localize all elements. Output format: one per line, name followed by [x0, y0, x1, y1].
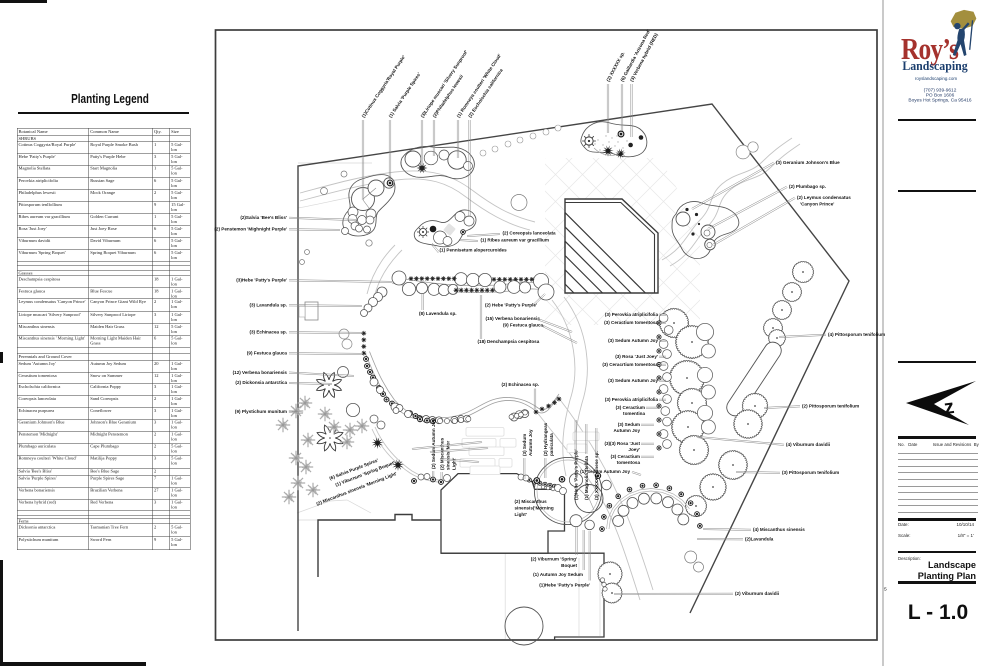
svg-text:(15) Verbena bonariensis: (15) Verbena bonariensis — [486, 316, 541, 321]
svg-text:(2) Coreopsis lanceolata: (2) Coreopsis lanceolata — [503, 231, 557, 236]
svg-text:(9) Festuca glauca: (9) Festuca glauca — [247, 351, 288, 356]
svg-text:tomentina: tomentina — [623, 411, 645, 416]
svg-text:z: z — [943, 396, 956, 419]
svg-text:(3) Ceractium tomentosa: (3) Ceractium tomentosa — [604, 320, 658, 325]
svg-text:sinensis('Morning: sinensis('Morning — [515, 506, 554, 511]
svg-text:(4) Viburnum davidii: (4) Viburnum davidii — [786, 442, 830, 447]
svg-text:(2) Echinacea sp.: (2) Echinacea sp. — [502, 382, 540, 387]
svg-text:(3) Sedum Autumn Joy: (3) Sedum Autumn Joy — [608, 378, 658, 383]
svg-text:(4) Pittosporum tenifolium: (4) Pittosporum tenifolium — [828, 332, 885, 337]
svg-text:(3) Ceractium: (3) Ceractium — [611, 454, 640, 459]
svg-text:(3) Perovkia atriplicifolia: (3) Perovkia atriplicifolia — [605, 397, 659, 402]
svg-text:paniculata: paniculata — [549, 433, 554, 456]
svg-text:Joey': Joey' — [628, 447, 640, 452]
svg-text:(1)Hebe 'Patty's Purple': (1)Hebe 'Patty's Purple' — [574, 449, 579, 500]
svg-text:(1) Romneya coulteri 'White Cl: (1) Romneya coulteri 'White Cloud' — [456, 53, 502, 119]
svg-text:(3) Sedum: (3) Sedum — [618, 422, 640, 427]
svg-text:Autumn Joy: Autumn Joy — [528, 429, 533, 456]
svg-text:(3) Lavandula sp.: (3) Lavandula sp. — [249, 303, 287, 308]
svg-text:(2) Hydrangeas: (2) Hydrangeas — [543, 422, 548, 456]
svg-text:(3)(3) Rosa 'Just: (3)(3) Rosa 'Just — [604, 441, 640, 446]
svg-text:tomentosa: tomentosa — [617, 460, 641, 465]
svg-text:Light': Light' — [515, 512, 527, 517]
svg-text:(3) Sedum Autumn Joy: (3) Sedum Autumn Joy — [608, 338, 658, 343]
svg-text:(3) Sedum: (3) Sedum — [522, 434, 527, 456]
svg-text:(3) Echinacea sp.: (3) Echinacea sp. — [249, 330, 287, 335]
svg-text:(12) Verbena bonariensis: (12) Verbena bonariensis — [233, 370, 288, 375]
svg-text:Autumn Joy: Autumn Joy — [613, 428, 640, 433]
svg-text:Boquet: Boquet — [561, 563, 577, 568]
svg-text:(3) Ceractium: (3) Ceractium — [616, 405, 645, 410]
svg-text:(8) Lavendula sp.: (8) Lavendula sp. — [419, 311, 457, 316]
svg-text:(1) Autumn Joy Sedum: (1) Autumn Joy Sedum — [533, 572, 583, 577]
svg-text:(1) Pennisetum alopercuroides: (1) Pennisetum alopercuroides — [440, 248, 508, 253]
svg-text:(3) Geranium Johnson's Blue: (3) Geranium Johnson's Blue — [776, 160, 840, 165]
svg-text:(1) Salvia 'Purple Spires': (1) Salvia 'Purple Spires' — [388, 72, 422, 119]
svg-text:(3) Perovkia atriplicifolia: (3) Perovkia atriplicifolia — [605, 312, 659, 317]
svg-text:(3) Rosa 'Just Joey': (3) Rosa 'Just Joey' — [615, 354, 658, 359]
svg-text:(2) Plumbago sp.: (2) Plumbago sp. — [789, 184, 826, 189]
svg-text:(3)Hebe 'Patty's Purple': (3)Hebe 'Patty's Purple' — [236, 278, 287, 283]
svg-text:(2) Miscanthus: (2) Miscanthus — [515, 499, 548, 504]
svg-text:(18) Denchampsia cespitosa: (18) Denchampsia cespitosa — [478, 339, 540, 344]
svg-text:(2) Penstemon 'Mighnight Purpl: (2) Penstemon 'Mighnight Purple' — [214, 227, 287, 232]
svg-text:(3) Ceracrtium tomentosa: (3) Ceracrtium tomentosa — [602, 362, 658, 367]
svg-text:(1)Hebe 'Patty's Purple': (1)Hebe 'Patty's Purple' — [539, 583, 590, 588]
svg-text:(3) Pittosporum tenifolium: (3) Pittosporum tenifolium — [782, 470, 839, 475]
svg-text:(2)Salvia 'Bee's Bliss': (2)Salvia 'Bee's Bliss' — [240, 215, 287, 220]
svg-text:'Canyon Prince': 'Canyon Prince' — [800, 202, 834, 207]
svg-text:(2) Hebe 'Patty's Purple': (2) Hebe 'Patty's Purple' — [485, 303, 537, 308]
svg-text:(2) Sedum Autumn Joy: (2) Sedum Autumn Joy — [431, 419, 436, 469]
svg-text:(2) Viburnum davidii: (2) Viburnum davidii — [735, 591, 779, 596]
svg-text:(1) Magnolia stellata: (1) Magnolia stellata — [584, 456, 589, 500]
svg-text:(1) Ribes aureum var gracilliu: (1) Ribes aureum var gracillium — [481, 238, 549, 243]
svg-text:(3) XXXXXX sinese sp.: (3) XXXXXX sinese sp. — [594, 451, 599, 500]
svg-text:(2) Miscanthus: (2) Miscanthus — [440, 437, 445, 470]
svg-text:(2) Leymus condensatus: (2) Leymus condensatus — [797, 195, 851, 200]
svg-text:(4) Miscanthus sinensis: (4) Miscanthus sinensis — [753, 527, 805, 532]
svg-text:(2) Dickonsia antarctica: (2) Dickonsia antarctica — [235, 380, 287, 385]
svg-text:(9) Festuca glauca.: (9) Festuca glauca. — [503, 323, 544, 328]
svg-text:(9) Plystichum munitum: (9) Plystichum munitum — [235, 409, 287, 414]
svg-text:(1)Cotinus Coggyria'Royal Purp: (1)Cotinus Coggyria'Royal Purple' — [361, 54, 407, 118]
svg-text:(2)Lavandula: (2)Lavandula — [745, 537, 774, 542]
svg-text:(2) Viburnum 'Spring': (2) Viburnum 'Spring' — [531, 557, 577, 562]
svg-text:(2) Pittosporum tenifolium: (2) Pittosporum tenifolium — [802, 404, 859, 409]
